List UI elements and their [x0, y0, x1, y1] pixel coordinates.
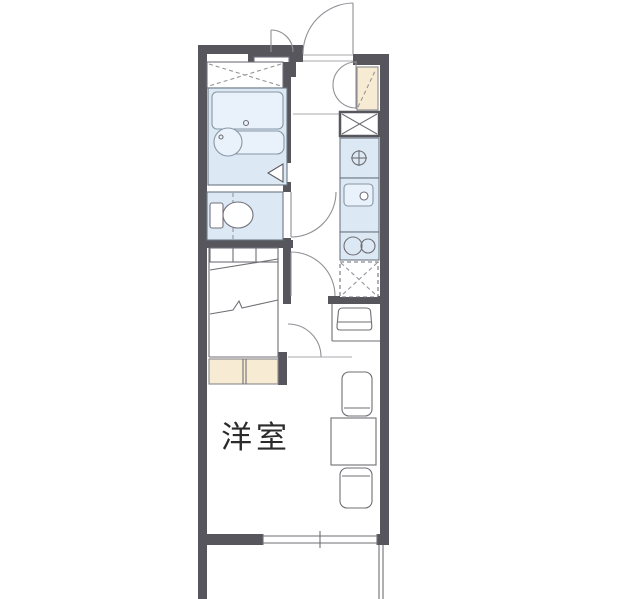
bed-shelf-row	[210, 248, 278, 262]
floor-plan-drawing: 洋室	[0, 0, 640, 599]
chair-top	[342, 372, 372, 416]
outer-wall-left	[198, 45, 207, 599]
bath-sink	[214, 128, 242, 156]
kitchen-sink	[344, 184, 373, 206]
entrance-left-jamb-wall	[294, 45, 303, 62]
bed-break-line	[210, 300, 278, 314]
floor-plan: 洋室	[0, 0, 640, 599]
shoe-cabinet-door-arc-top	[333, 62, 356, 85]
toilet-bottom-wall	[207, 240, 293, 248]
toilet-tank	[210, 203, 223, 228]
bathtub	[212, 92, 283, 129]
room-door-swing-arc	[291, 252, 335, 296]
stove-unit	[340, 232, 379, 260]
bottom-wall-right	[377, 534, 389, 545]
chair-bottom	[340, 468, 372, 508]
entrance-door-swing-arc	[303, 3, 353, 54]
toilet-door-swing-arc	[291, 192, 336, 237]
bottom-wall-left	[198, 534, 263, 545]
kitchen-faucet-icon	[360, 192, 368, 200]
desk-chair	[337, 308, 372, 330]
shoe-cabinet	[357, 67, 378, 110]
table	[331, 418, 376, 465]
shoe-cabinet-door-arc-bottom	[333, 85, 356, 108]
toilet-bowl	[223, 202, 253, 228]
room-label: 洋室	[221, 420, 291, 455]
room-door-swing-arc-2	[288, 324, 321, 357]
